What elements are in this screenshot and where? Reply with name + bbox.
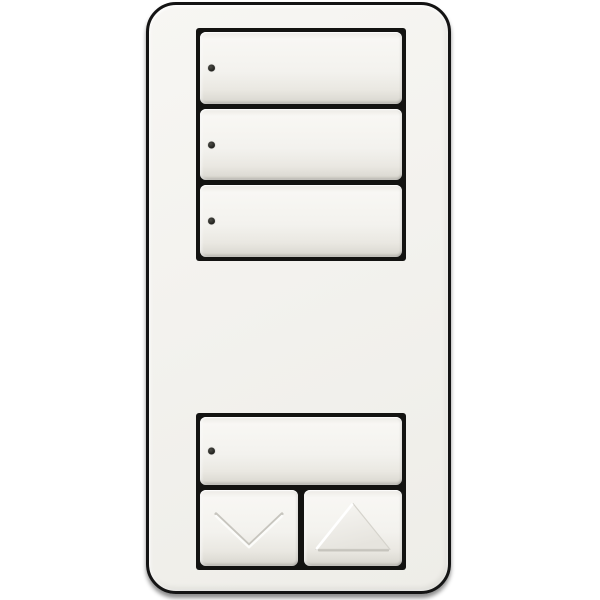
top-button-well — [196, 28, 406, 261]
scene-button-1[interactable] — [200, 32, 402, 104]
rocker-row — [200, 490, 402, 566]
scene-button-3[interactable] — [200, 185, 402, 257]
led-indicator — [208, 448, 215, 455]
led-indicator — [208, 218, 215, 225]
keypad-faceplate — [146, 2, 451, 594]
chevron-up-icon — [304, 490, 402, 566]
led-indicator — [208, 141, 215, 148]
raise-button[interactable] — [304, 490, 402, 566]
product-image — [0, 0, 600, 600]
lower-button[interactable] — [200, 490, 298, 566]
led-indicator — [208, 64, 215, 71]
scene-button-2[interactable] — [200, 109, 402, 181]
bottom-button-well — [196, 413, 406, 570]
chevron-down-icon — [200, 490, 298, 566]
scene-button-4[interactable] — [200, 417, 402, 485]
